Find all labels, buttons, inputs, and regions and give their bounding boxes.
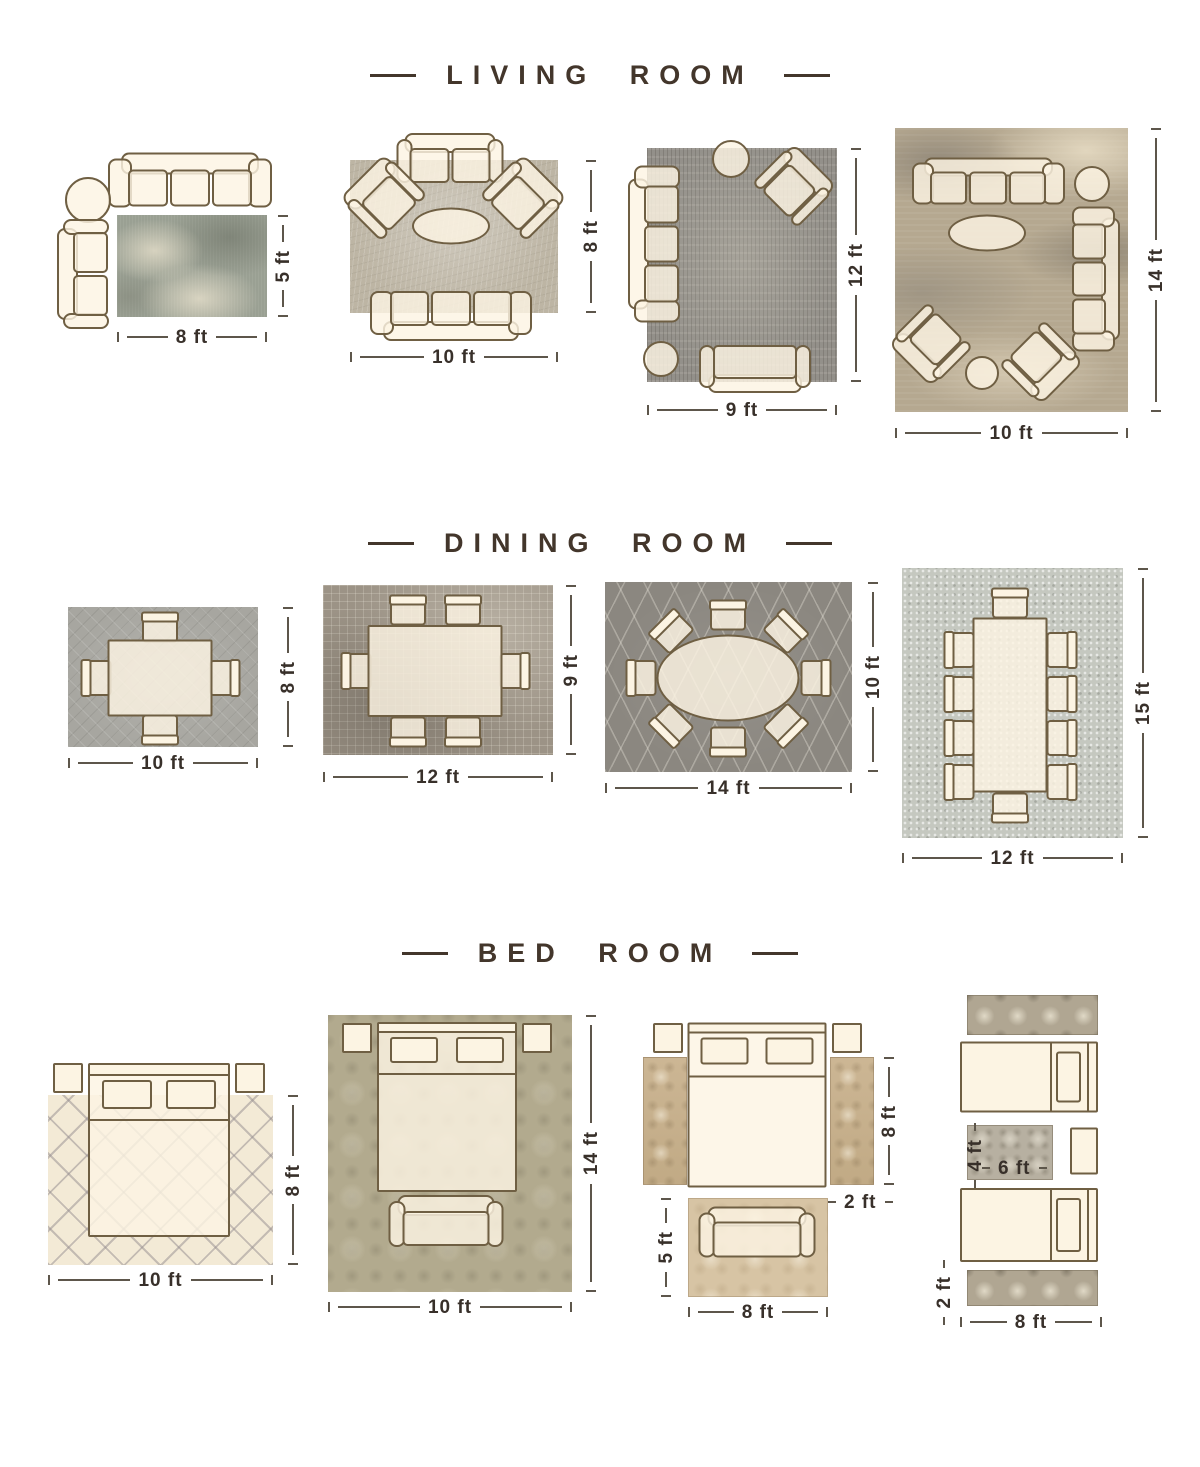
rug-width-dimension: 10 ft (48, 1270, 273, 1290)
dimension-label: 2 ft (844, 1193, 877, 1212)
round-table-icon (643, 341, 679, 377)
rug-width-dimension: 10 ft (350, 347, 558, 367)
rug-height-dimension: 8 ft (277, 607, 299, 747)
section-header-dining-room: DINING ROOM (0, 528, 1200, 559)
rug-height-dimension: 15 ft (1132, 568, 1154, 838)
rug-height-dimension: 8 ft (580, 160, 602, 313)
round-table-icon (965, 356, 999, 390)
dimension-label: 12 ft (990, 849, 1034, 868)
dimension-label: 8 ft (279, 661, 298, 694)
chair-icon (628, 660, 657, 696)
nightstand-icon (653, 1023, 683, 1053)
chair-icon (710, 602, 746, 631)
round-table-icon (1074, 166, 1110, 202)
sofa-icon (110, 153, 270, 208)
dimension-label: 14 ft (706, 779, 750, 798)
chair-icon (946, 676, 975, 712)
runner-width-dimension: 2 ft (828, 1192, 884, 1212)
title-dash (784, 74, 830, 77)
rug-width-dimension: 8 ft (688, 1302, 828, 1322)
chair-icon (142, 614, 178, 643)
chair-icon (445, 717, 481, 746)
rug-height-dimension: 5 ft (272, 215, 294, 317)
loveseat-icon (700, 345, 810, 393)
rug-width-dimension: 10 ft (328, 1297, 572, 1317)
rug-size-guide: LIVING ROOM 5 ft 8 ft 8 ft 10 ft (0, 0, 1200, 1467)
dimension-label: 8 ft (284, 1164, 303, 1197)
sofa-icon (1072, 208, 1120, 351)
rug-height-dimension: 14 ft (580, 1015, 602, 1292)
dimension-label: 12 ft (847, 243, 866, 287)
bed-side-dimension: 8 ft (878, 1057, 900, 1185)
round-table-icon (65, 177, 111, 223)
round-table-icon (712, 140, 750, 178)
section-title: BED ROOM (478, 938, 723, 969)
rug-width-dimension: 9 ft (647, 400, 837, 420)
rug-width-dimension: 10 ft (895, 423, 1128, 443)
accent-rug-width-dimension: 6 ft (982, 1158, 1054, 1178)
dimension-label: 10 ft (141, 754, 185, 773)
dimension-label: 10 ft (864, 655, 883, 699)
chair-icon (801, 660, 830, 696)
dining-table-icon (108, 640, 213, 717)
loveseat-icon (700, 1207, 815, 1258)
rug-height-dimension: 14 ft (1145, 128, 1167, 412)
twin-bed-icon (960, 1188, 1098, 1262)
rug-width-dimension: 8 ft (960, 1312, 1102, 1332)
sofa-icon (628, 168, 680, 321)
chair-icon (1047, 764, 1076, 800)
dimension-label: 8 ft (1015, 1313, 1048, 1332)
chair-icon (946, 632, 975, 668)
title-dash (752, 952, 798, 955)
nightstand-icon (53, 1063, 83, 1093)
title-dash (368, 542, 414, 545)
dimension-label: 8 ft (742, 1303, 775, 1322)
sofa-icon (372, 291, 530, 341)
runner-rug (643, 1057, 687, 1185)
bed-icon (377, 1022, 517, 1192)
area-rug (117, 215, 267, 317)
dimension-label: 8 ft (582, 220, 601, 253)
runner-rug (967, 995, 1098, 1035)
nightstand-icon (522, 1023, 552, 1053)
rug-height-dimension: 8 ft (282, 1095, 304, 1265)
twin-bed-icon (960, 1042, 1098, 1113)
loveseat-icon (398, 133, 503, 183)
rug-width-dimension: 8 ft (117, 327, 267, 347)
dining-table-icon (973, 618, 1048, 793)
oval-table-icon (948, 215, 1026, 252)
dining-table-icon (368, 625, 503, 717)
loveseat-icon (57, 220, 109, 328)
chair-icon (142, 715, 178, 744)
dimension-label: 10 ft (138, 1271, 182, 1290)
dimension-label: 14 ft (582, 1131, 601, 1175)
chair-icon (992, 590, 1028, 619)
runner-rug (830, 1057, 874, 1185)
dimension-label: 8 ft (880, 1105, 899, 1138)
dimension-label: 10 ft (989, 424, 1033, 443)
runner-width-dimension: 2 ft (933, 1260, 955, 1316)
dimension-label: 9 ft (562, 654, 581, 687)
section-header-bed-room: BED ROOM (0, 938, 1200, 969)
rug-width-dimension: 14 ft (605, 778, 852, 798)
dimension-label: 12 ft (416, 768, 460, 787)
foot-rug-height-dimension: 5 ft (655, 1198, 677, 1297)
dimension-label: 9 ft (726, 401, 759, 420)
chair-icon (710, 727, 746, 756)
rug-height-dimension: 9 ft (560, 585, 582, 755)
sofa-icon (913, 158, 1063, 205)
chair-icon (992, 793, 1028, 822)
dimension-label: 15 ft (1134, 681, 1153, 725)
chair-icon (1047, 720, 1076, 756)
chair-icon (1047, 632, 1076, 668)
rug-height-dimension: 10 ft (862, 582, 884, 772)
rug-height-dimension: 12 ft (845, 148, 867, 382)
dimension-label: 10 ft (428, 1298, 472, 1317)
dimension-label: 10 ft (432, 348, 476, 367)
nightstand-icon (342, 1023, 372, 1053)
oval-dining-table-icon (657, 635, 800, 722)
chair-icon (445, 597, 481, 626)
nightstand-icon (235, 1063, 265, 1093)
section-title: DINING ROOM (444, 528, 756, 559)
runner-rug (967, 1270, 1098, 1306)
chair-icon (946, 720, 975, 756)
dimension-label: 14 ft (1147, 248, 1166, 292)
dimension-label: 5 ft (657, 1231, 676, 1264)
chair-icon (946, 764, 975, 800)
title-dash (402, 952, 448, 955)
nightstand-icon (832, 1023, 862, 1053)
nightstand-icon (1070, 1128, 1098, 1175)
section-title: LIVING ROOM (446, 60, 754, 91)
title-dash (786, 542, 832, 545)
dimension-label: 5 ft (274, 250, 293, 283)
rug-width-dimension: 12 ft (323, 767, 553, 787)
dimension-label: 2 ft (935, 1276, 954, 1309)
oval-table-icon (412, 208, 490, 245)
chair-icon (500, 653, 529, 689)
rug-width-dimension: 10 ft (68, 753, 258, 773)
chair-icon (390, 717, 426, 746)
dimension-label: 8 ft (176, 328, 209, 347)
rug-width-dimension: 12 ft (902, 848, 1123, 868)
bed-icon (688, 1023, 827, 1188)
chair-icon (390, 597, 426, 626)
title-dash (370, 74, 416, 77)
bench-icon (390, 1195, 503, 1247)
dimension-label: 6 ft (998, 1159, 1031, 1178)
chair-icon (1047, 676, 1076, 712)
chair-icon (210, 660, 239, 696)
bed-icon (88, 1063, 230, 1237)
section-header-living-room: LIVING ROOM (0, 60, 1200, 91)
